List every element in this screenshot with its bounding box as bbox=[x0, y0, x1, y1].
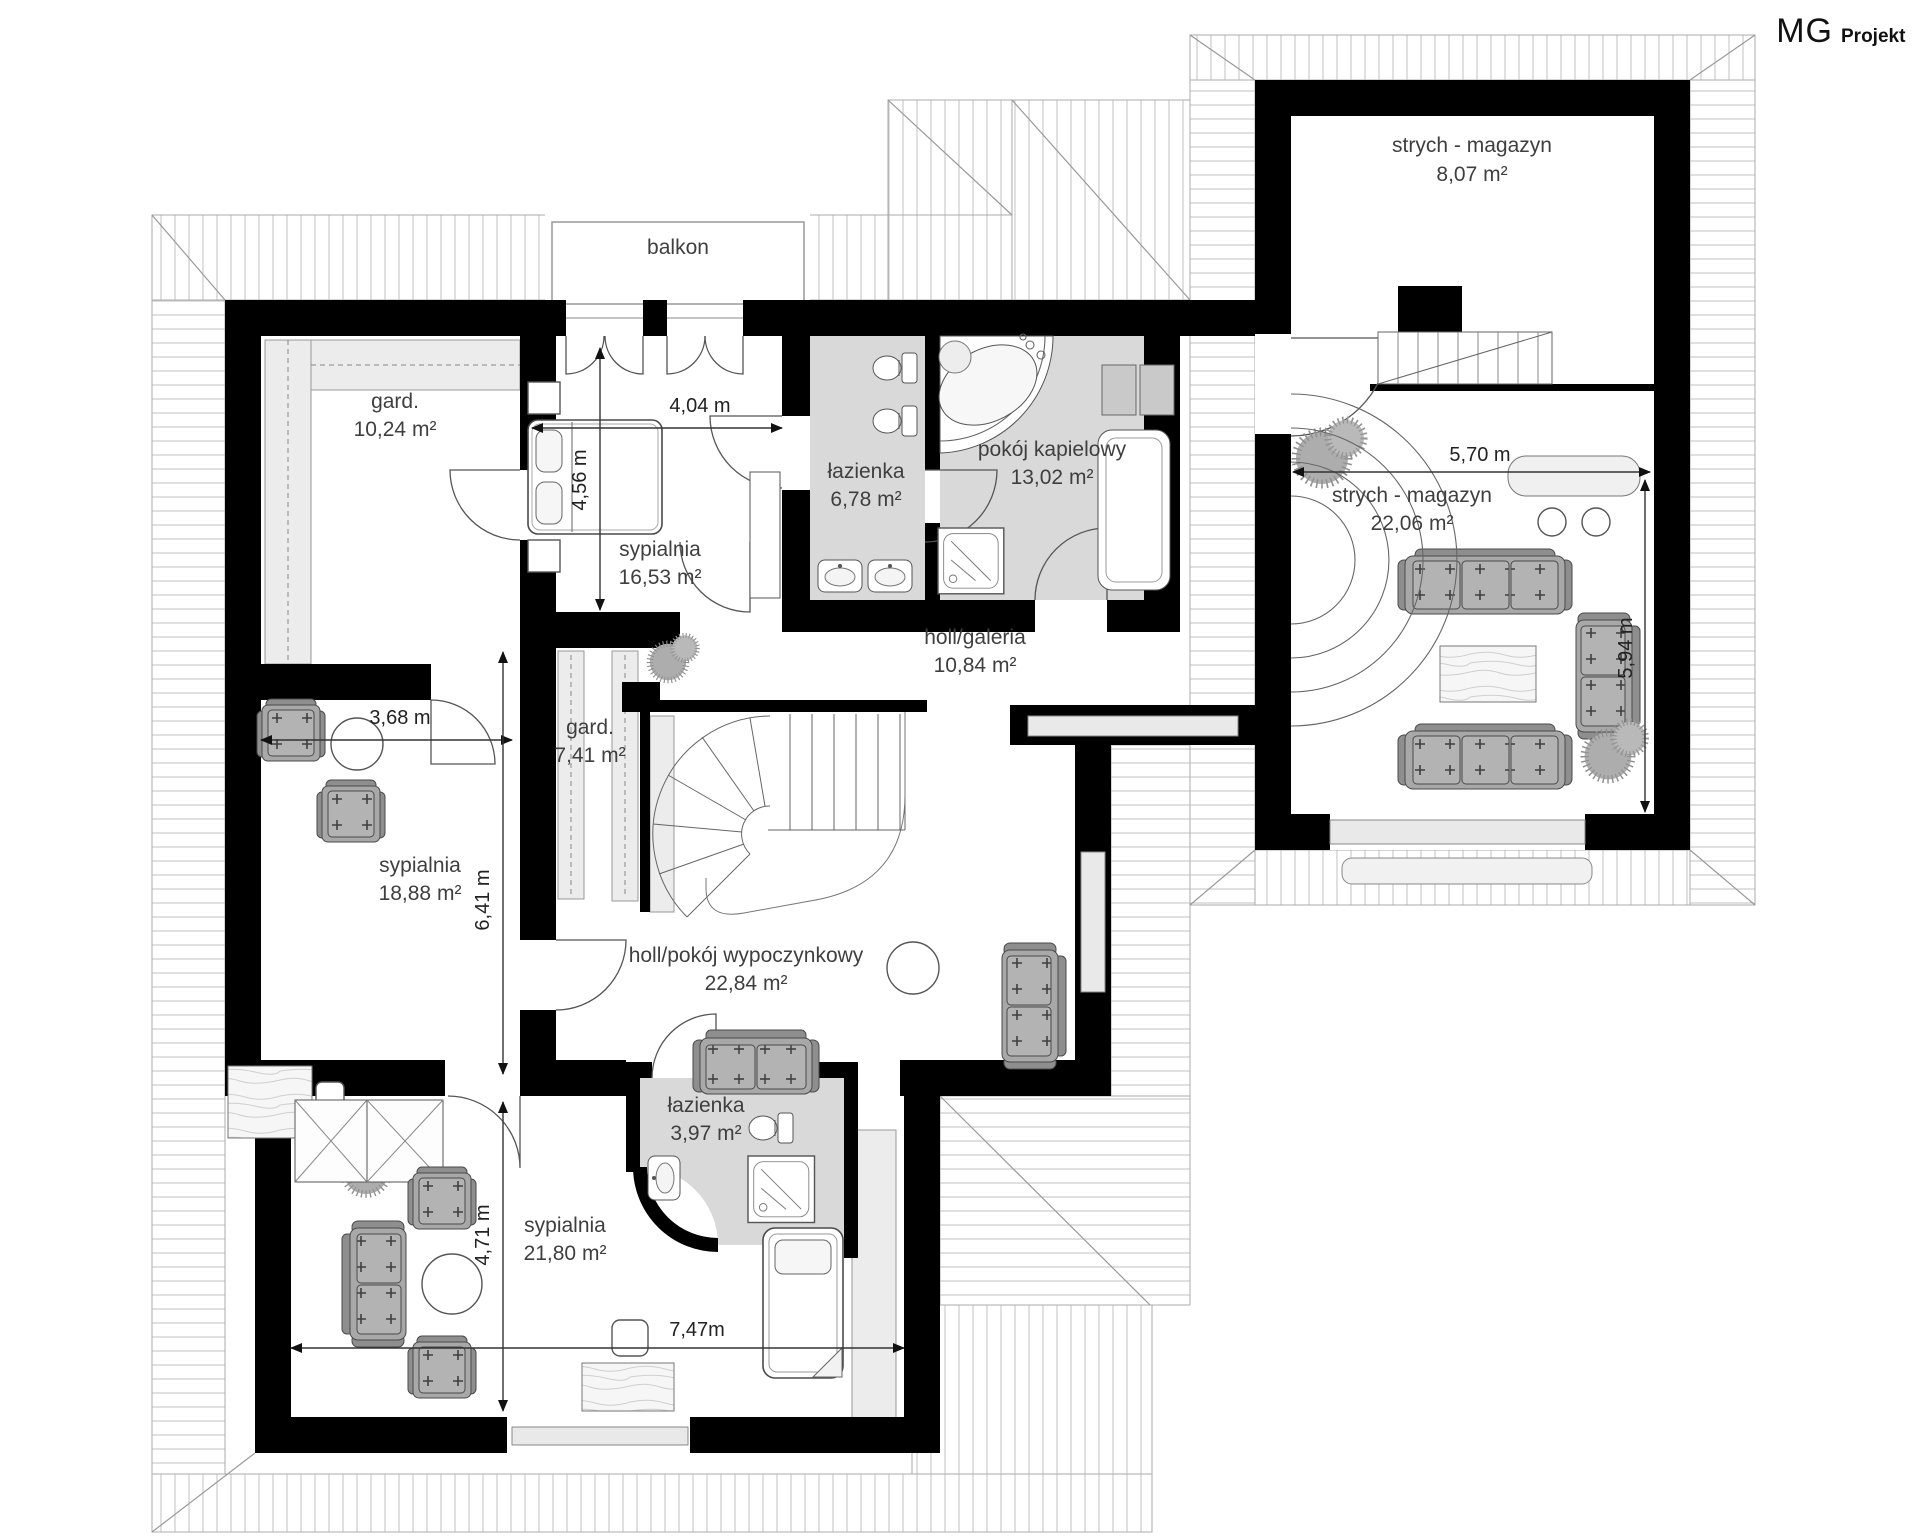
nightstand bbox=[528, 382, 560, 414]
dim-4-56: 4,56 m bbox=[569, 449, 591, 510]
logo-projekt: Projekt bbox=[1841, 26, 1906, 47]
dim-5-70: 5,70 m bbox=[1449, 444, 1510, 466]
room-area-gard-small: 7,41 m² bbox=[554, 744, 625, 767]
pouf bbox=[1582, 508, 1610, 536]
dresser bbox=[582, 1363, 674, 1411]
shower bbox=[748, 1156, 815, 1223]
room-area-holl-galeria: 10,84 m² bbox=[934, 654, 1017, 677]
sink bbox=[818, 560, 862, 592]
sofa bbox=[1002, 943, 1066, 1069]
room-label-holl-galeria: holl/galeria bbox=[924, 626, 1026, 649]
room-label-gard-small: gard. bbox=[566, 716, 614, 739]
room-label-sypialnia-16: sypialnia bbox=[619, 538, 701, 561]
sofa bbox=[1398, 549, 1572, 614]
dim-4-04: 4,04 m bbox=[669, 395, 730, 417]
room-label-sypialnia-18: sypialnia bbox=[379, 854, 461, 877]
floor-plan-page: 4,04 m 4,56 m 3,68 m 6,41 m 4,71 m 7,47m… bbox=[0, 0, 1920, 1538]
room-label-holl-wypoczynkowy: holl/pokój wypoczynkowy bbox=[629, 944, 864, 967]
room-area-lazienka-6: 6,78 m² bbox=[830, 488, 901, 511]
room-label-balkon: balkon bbox=[647, 236, 709, 259]
bench bbox=[1508, 456, 1640, 496]
room-label-lazienka-6: łazienka bbox=[827, 460, 904, 483]
dim-4-71: 4,71 m bbox=[472, 1204, 494, 1265]
room-area-holl-wypoczynkowy: 22,84 m² bbox=[705, 972, 788, 995]
round-table bbox=[887, 942, 939, 994]
room-label-lazienka-3: łazienka bbox=[667, 1094, 744, 1117]
sink bbox=[868, 560, 912, 592]
armchair bbox=[408, 1336, 476, 1398]
dim-7-47: 7,47m bbox=[669, 1319, 725, 1341]
dim-6-41: 6,41 m bbox=[472, 869, 494, 930]
room-label-strych-large: strych - magazyn bbox=[1332, 484, 1492, 507]
double-bed bbox=[528, 420, 662, 534]
room-area-sypialnia-16: 16,53 m² bbox=[619, 566, 702, 589]
dim-5-94: 5,94 m bbox=[1615, 617, 1637, 678]
coffee-table bbox=[1440, 646, 1536, 702]
room-area-gard-large: 10,24 m² bbox=[354, 418, 437, 441]
armchair bbox=[317, 780, 385, 842]
armchair bbox=[408, 1167, 476, 1229]
room-label-strych-small: strych - magazyn bbox=[1392, 134, 1552, 157]
single-bed bbox=[763, 1228, 843, 1378]
logo-mg: MG bbox=[1776, 12, 1833, 50]
shower bbox=[938, 528, 1004, 594]
stool bbox=[612, 1320, 648, 1356]
room-label-pokoj-kapielowy: pokój kapielowy bbox=[978, 438, 1127, 461]
room-area-lazienka-3: 3,97 m² bbox=[670, 1122, 741, 1145]
floor-plan-svg: 4,04 m 4,56 m 3,68 m 6,41 m 4,71 m 7,47m… bbox=[0, 0, 1920, 1538]
nightstand bbox=[528, 540, 560, 572]
sofa bbox=[693, 1030, 819, 1094]
sofa bbox=[342, 1221, 406, 1347]
room-area-sypialnia-21: 21,80 m² bbox=[524, 1242, 607, 1265]
room-area-strych-large: 22,06 m² bbox=[1371, 512, 1454, 535]
room-area-sypialnia-18: 18,88 m² bbox=[379, 882, 462, 905]
dim-3-68: 3,68 m bbox=[369, 707, 430, 729]
room-label-sypialnia-21: sypialnia bbox=[524, 1214, 606, 1237]
sink bbox=[648, 1156, 680, 1200]
armchair bbox=[257, 699, 325, 761]
room-area-strych-small: 8,07 m² bbox=[1436, 163, 1507, 186]
stair-railing-attic bbox=[1378, 332, 1552, 384]
sofa bbox=[1398, 724, 1572, 789]
room-label-gard-large: gard. bbox=[371, 390, 419, 413]
pouf bbox=[1538, 508, 1566, 536]
wardrobe-cabinet bbox=[750, 472, 780, 598]
room-area-pokoj-kapielowy: 13,02 m² bbox=[1011, 466, 1094, 489]
